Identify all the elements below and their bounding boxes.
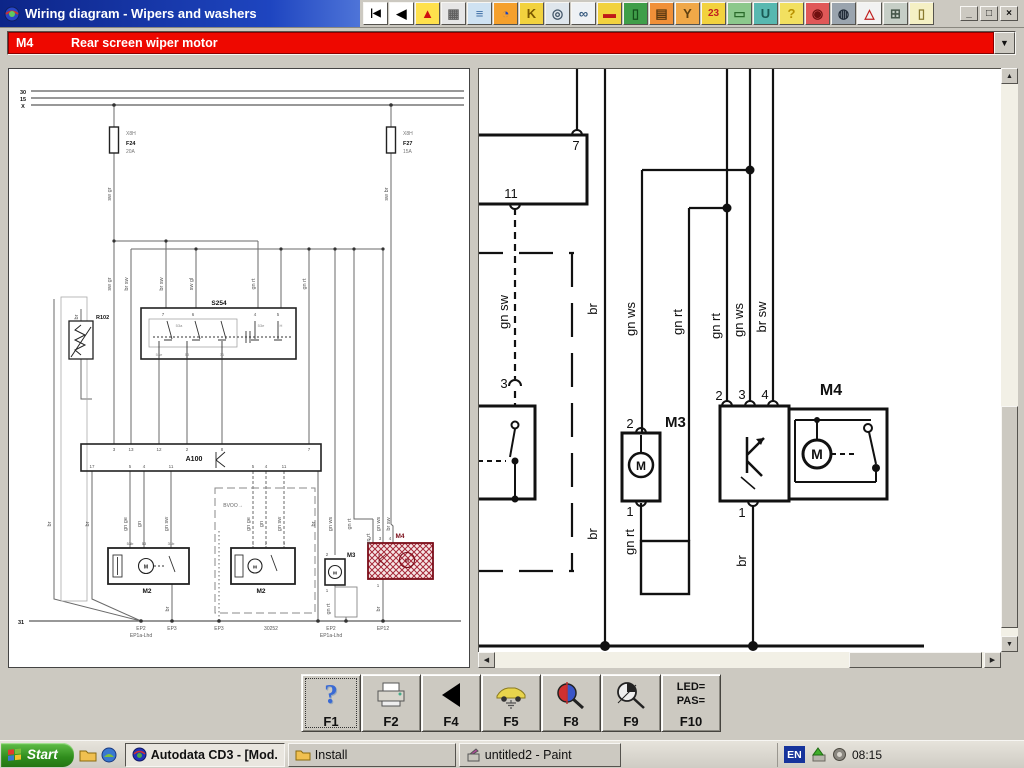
diagram-label: M bbox=[144, 565, 148, 571]
diagram-label: gn ws bbox=[623, 302, 638, 336]
diagram-label: F27 bbox=[403, 141, 412, 147]
titlebar: Wiring diagram - Wipers and washers |◀◀▲… bbox=[0, 0, 1024, 28]
led-label: LED= bbox=[677, 681, 705, 695]
diagram-label: 31 bbox=[220, 352, 225, 357]
timing-globe-icon[interactable]: ◔ bbox=[493, 2, 518, 25]
diagram-label: EP3 bbox=[214, 626, 224, 632]
diagram-label: gn ws bbox=[328, 517, 334, 532]
hoist-icon[interactable]: ≡ bbox=[467, 2, 492, 25]
diagram-label: 1 bbox=[626, 504, 633, 519]
diagram-label: 2 bbox=[265, 541, 268, 546]
scroll-right-button[interactable]: ▶ bbox=[984, 652, 1001, 668]
diagram-label: M bbox=[253, 565, 257, 570]
diagram-label: 13 bbox=[128, 447, 134, 452]
diagram-label: br bbox=[585, 303, 600, 315]
diagram-label: M bbox=[636, 459, 646, 473]
scroll-left-button[interactable]: ◀ bbox=[478, 652, 495, 668]
mirrors-icon-glyph: ∞ bbox=[579, 7, 588, 20]
diagram-label: EP12 bbox=[377, 626, 389, 632]
diagram-label: 5 bbox=[252, 464, 255, 469]
diagram-label: M4 bbox=[820, 382, 842, 399]
diagram-label: EP2 bbox=[326, 626, 336, 632]
warning-icon[interactable]: ▲ bbox=[415, 2, 440, 25]
diagram-label: H bbox=[280, 323, 283, 328]
diagram-label: 1 bbox=[377, 583, 380, 588]
truck-icon-glyph: ▤ bbox=[655, 7, 667, 20]
diagram-label: gn sw bbox=[496, 294, 511, 329]
first-page-button[interactable]: |◀ bbox=[363, 2, 388, 25]
pas-label: PAS= bbox=[677, 695, 705, 709]
diagram-label: 11 bbox=[504, 186, 518, 201]
diagram-label: 3 bbox=[500, 376, 507, 391]
diagram-label: X8H bbox=[403, 131, 413, 137]
system-tray: EN 08:15 bbox=[777, 743, 890, 767]
diagram-label: EP3 bbox=[167, 626, 177, 632]
window-title: Wiring diagram - Wipers and washers bbox=[25, 6, 257, 21]
diagram-label: M3 bbox=[665, 414, 686, 431]
diagram-label: 53 bbox=[185, 352, 190, 357]
airbag-icon-glyph: ◉ bbox=[812, 7, 823, 20]
abs-wheel-icon[interactable]: ◍ bbox=[831, 2, 856, 25]
paint-icon bbox=[466, 748, 481, 762]
diagram-label: 15 bbox=[20, 97, 26, 103]
door-switch-icon[interactable]: ▯ bbox=[909, 2, 934, 25]
diagram-label: EP1a-Lhd bbox=[130, 633, 152, 639]
diagram-label: 3 bbox=[283, 541, 286, 546]
diagram-label: gn rt bbox=[326, 603, 332, 614]
diagram-label: 6 bbox=[192, 312, 195, 317]
hoist-icon-glyph: ≡ bbox=[476, 7, 484, 20]
diagram-label: gn sw bbox=[164, 517, 170, 531]
function-key-label: F5 bbox=[503, 714, 518, 729]
diagram-label: 12 bbox=[156, 447, 162, 452]
horizontal-scroll-thumb[interactable] bbox=[849, 652, 982, 668]
first-page-button-glyph: |◀ bbox=[370, 9, 381, 19]
diagram-label: 2 bbox=[715, 388, 722, 403]
detail-diagram-panel[interactable]: 711gn sw3brbrgn wsgn rtgn rtgn wsbr sw2M… bbox=[478, 68, 1001, 652]
abs-warning-icon[interactable]: △ bbox=[857, 2, 882, 25]
led-pas-icon: LED=PAS= bbox=[662, 675, 720, 714]
diagram-label: X bbox=[21, 104, 25, 110]
overview-wiring-diagram: 3015XX8HF2420AX8HF2715Asw grsw brsw grbr… bbox=[9, 69, 469, 667]
quick-launch bbox=[77, 747, 125, 763]
window-panels-icon[interactable]: ▦ bbox=[441, 2, 466, 25]
folder-quicklaunch-icon[interactable] bbox=[79, 747, 97, 762]
diagram-label: M2 bbox=[142, 588, 151, 595]
diagram-label: 30252 bbox=[264, 626, 278, 632]
function-key-label: F1 bbox=[323, 714, 338, 729]
function-button-f2[interactable]: F2 bbox=[361, 674, 421, 732]
detail-wiring-diagram: 711gn sw3brbrgn wsgn rtgn rtgn wsbr sw2M… bbox=[479, 69, 1000, 651]
task-label: Install bbox=[315, 748, 348, 762]
diagram-label: 4 bbox=[143, 464, 146, 469]
mirrors-icon[interactable]: ∞ bbox=[571, 2, 596, 25]
diagram-label: gn ge bbox=[123, 517, 129, 531]
diagram-label: EP2 bbox=[594, 649, 617, 651]
detail-vertical-scrollbar[interactable]: ▲ ▼ bbox=[1001, 68, 1018, 652]
window-controls: _□× bbox=[934, 0, 1024, 27]
earth-point-search-icon bbox=[602, 675, 660, 714]
diagram-label: 53e bbox=[156, 352, 163, 357]
diagram-label: gn sw bbox=[277, 517, 283, 531]
close-button[interactable]: × bbox=[1000, 6, 1018, 21]
diagram-label: 1 bbox=[738, 505, 745, 520]
diagram-label: gn bbox=[137, 521, 143, 527]
diagram-label: gn ws bbox=[731, 303, 746, 337]
door-lift-icon[interactable]: ▯ bbox=[623, 2, 648, 25]
bodywork-icon[interactable]: ▬ bbox=[597, 2, 622, 25]
diagram-label: F24 bbox=[126, 141, 136, 147]
diagram-label: 3 bbox=[379, 536, 382, 541]
diagram-label: 11 bbox=[282, 464, 287, 469]
diagram-label: br sw bbox=[124, 277, 130, 290]
door-switch-icon-glyph: ▯ bbox=[918, 7, 925, 20]
desktop-quicklaunch-icon[interactable] bbox=[101, 747, 117, 763]
diagram-label: br sw bbox=[754, 301, 769, 333]
component-selector: M4 Rear screen wiper motor ▼ bbox=[7, 31, 1016, 55]
diagram-label: gn rt bbox=[670, 309, 685, 335]
diagram-label: A100 bbox=[186, 456, 203, 463]
diagram-label: 5 bbox=[277, 312, 280, 317]
help-car-icon[interactable]: ? bbox=[779, 2, 804, 25]
diagram-label: 15A bbox=[403, 149, 413, 155]
diagram-label: 7 bbox=[308, 447, 311, 452]
back-button-glyph: ◀ bbox=[397, 7, 407, 20]
diagram-label: 5 bbox=[129, 464, 132, 469]
diagram-label: br bbox=[311, 521, 317, 526]
diagram-label: sw gl bbox=[189, 278, 195, 291]
clock[interactable]: 08:15 bbox=[852, 748, 882, 762]
function-button-f1[interactable]: ?F1 bbox=[301, 674, 361, 732]
diagram-label: 3 bbox=[113, 447, 116, 452]
chevron-down-icon: ▼ bbox=[1000, 38, 1009, 48]
wheel-icon-glyph: ◎ bbox=[552, 7, 563, 20]
oil-can-icon-glyph: U bbox=[761, 7, 770, 20]
diagram-label: br bbox=[585, 528, 600, 540]
scroll-down-button[interactable]: ▼ bbox=[1001, 636, 1018, 652]
diagram-label: br bbox=[376, 606, 382, 611]
diagram-label: M3 bbox=[347, 553, 356, 559]
component-code: M4 bbox=[9, 36, 71, 50]
overview-diagram-panel[interactable]: 3015XX8HF2420AX8HF2715Asw grsw brsw grbr… bbox=[8, 68, 470, 668]
scrollbar-corner bbox=[1001, 652, 1018, 668]
door-lift-icon-glyph: ▯ bbox=[632, 7, 639, 20]
diagram-label: br bbox=[74, 314, 80, 319]
diagram-label: 53a bbox=[176, 323, 183, 328]
function-button-f8[interactable]: F8 bbox=[541, 674, 601, 732]
key-fob-icon[interactable]: Y bbox=[675, 2, 700, 25]
diagram-label: 11 bbox=[169, 464, 174, 469]
engine-icon[interactable]: ⊞ bbox=[883, 2, 908, 25]
diagram-label: br bbox=[165, 606, 171, 611]
key-programming-icon-glyph: K bbox=[527, 7, 536, 20]
diagram-label: gn rt bbox=[708, 313, 723, 339]
print-icon bbox=[362, 675, 420, 714]
diagram-label: M bbox=[333, 571, 337, 576]
diagram-label: 17 bbox=[89, 464, 95, 469]
diagram-label: sw br bbox=[384, 187, 390, 200]
function-key-bar: ?F1F2F4F5F8F9LED=PAS=F10 bbox=[0, 672, 1024, 738]
diagram-label: 3 bbox=[738, 387, 745, 402]
help-icon: ? bbox=[302, 675, 360, 714]
function-button-f5[interactable]: F5 bbox=[481, 674, 541, 732]
task-button-area: Autodata CD3 - [Mod...Installuntitled2 -… bbox=[125, 743, 624, 767]
oil-can-icon[interactable]: U bbox=[753, 2, 778, 25]
diagram-label: 7 bbox=[162, 312, 165, 317]
back-button[interactable]: ◀ bbox=[389, 2, 414, 25]
diagram-label: 4 bbox=[761, 387, 768, 402]
diagram-label: 8 bbox=[221, 447, 224, 452]
diagram-label: 4 bbox=[265, 464, 268, 469]
minimize-button[interactable]: _ bbox=[960, 6, 978, 21]
diagram-label: S254 bbox=[211, 300, 227, 307]
function-key-label: F2 bbox=[383, 714, 398, 729]
function-button-f4[interactable]: F4 bbox=[421, 674, 481, 732]
diagram-label: M bbox=[811, 446, 823, 462]
diagram-label: gn ws bbox=[376, 517, 382, 532]
diagram-label: 53b bbox=[127, 541, 134, 546]
function-button-f9[interactable]: F9 bbox=[601, 674, 661, 732]
diagram-label: M bbox=[405, 559, 409, 565]
diagram-label: 7 bbox=[572, 138, 579, 153]
app-icon bbox=[4, 6, 20, 22]
diagram-label: 31 bbox=[18, 620, 24, 626]
truck-icon[interactable]: ▤ bbox=[649, 2, 674, 25]
task-label: Autodata CD3 - [Mod... bbox=[151, 748, 278, 762]
diagram-label: sw gr bbox=[107, 277, 113, 290]
diagram-label: br bbox=[47, 521, 53, 526]
task-label: untitled2 - Paint bbox=[485, 748, 572, 762]
printer-icon-glyph: ▭ bbox=[733, 7, 745, 20]
component-search-icon bbox=[542, 675, 600, 714]
window-panels-icon-glyph: ▦ bbox=[447, 7, 459, 20]
diagram-label: gn rt bbox=[251, 278, 257, 289]
detail-diagram-wrap: 711gn sw3brbrgn wsgn rtgn rtgn wsbr sw2M… bbox=[478, 68, 1018, 668]
diagram-label: EP1a-Lhd bbox=[320, 633, 342, 639]
diagram-label: gn rt bbox=[302, 278, 308, 289]
component-dropdown-button[interactable]: ▼ bbox=[994, 32, 1015, 54]
diagram-label: M4 bbox=[395, 533, 404, 540]
scroll-up-button[interactable]: ▲ bbox=[1001, 68, 1018, 84]
screen: { "window": { "title": "Wiring diagram -… bbox=[0, 0, 1024, 768]
function-key-label: F9 bbox=[623, 714, 638, 729]
diagram-label: br bbox=[85, 521, 91, 526]
diagram-label: 20A bbox=[126, 149, 136, 155]
service-intervals-icon[interactable]: 23 bbox=[701, 2, 726, 25]
diagram-label: gn bbox=[259, 521, 265, 527]
key-fob-icon-glyph: Y bbox=[683, 7, 692, 20]
taskbar: Start Autodata CD3 - [Mod...Installuntit… bbox=[0, 740, 1024, 768]
autodata-icon bbox=[132, 747, 147, 762]
diagram-label: br bbox=[734, 555, 749, 567]
airbag-icon[interactable]: ◉ bbox=[805, 2, 830, 25]
diagram-label: M2 bbox=[256, 588, 265, 595]
diagram-label: 30 bbox=[20, 90, 26, 96]
abs-wheel-icon-glyph: ◍ bbox=[838, 7, 849, 20]
wheel-icon[interactable]: ◎ bbox=[545, 2, 570, 25]
diagram-label: gn ge bbox=[246, 517, 252, 531]
timing-globe-icon-glyph: ◔ bbox=[502, 7, 510, 20]
diagram-label: 4 bbox=[254, 312, 257, 317]
maximize-button[interactable]: □ bbox=[980, 6, 998, 21]
function-key-label: F8 bbox=[563, 714, 578, 729]
detail-horizontal-scrollbar[interactable]: ◀ ▶ bbox=[478, 652, 1001, 668]
diagram-label: R102 bbox=[96, 315, 109, 321]
diagram-label: BVOO→ bbox=[223, 503, 242, 509]
diagram-label: br sw bbox=[386, 517, 392, 530]
component-label: Rear screen wiper motor bbox=[71, 36, 218, 50]
diagram-label: 53 bbox=[142, 541, 147, 546]
diagram-label: 1 bbox=[252, 541, 255, 546]
eject-hardware-icon[interactable] bbox=[810, 747, 827, 762]
windows-flag-icon bbox=[7, 747, 23, 762]
warning-icon-glyph: ▲ bbox=[421, 7, 434, 20]
diagram-label: sw gr bbox=[107, 187, 113, 200]
component-selector-value[interactable]: M4 Rear screen wiper motor bbox=[8, 32, 994, 54]
vehicle-earth-icon bbox=[482, 675, 540, 714]
vertical-scroll-thumb[interactable] bbox=[1001, 406, 1018, 628]
function-button-f10[interactable]: LED=PAS=F10 bbox=[661, 674, 721, 732]
abs-warning-icon-glyph: △ bbox=[865, 7, 875, 20]
diagram-label: gn rt bbox=[347, 518, 353, 529]
printer-icon[interactable]: ▭ bbox=[727, 2, 752, 25]
service-intervals-icon-glyph: 23 bbox=[708, 9, 719, 19]
diagram-label: br sw bbox=[159, 277, 165, 290]
taskbar-task-untitled2-paint[interactable]: untitled2 - Paint bbox=[459, 743, 621, 767]
language-indicator[interactable]: EN bbox=[784, 746, 805, 763]
diagram-label: 1 bbox=[326, 588, 329, 593]
diagram-label: EP12 bbox=[738, 649, 768, 651]
bodywork-icon-glyph: ▬ bbox=[603, 7, 616, 20]
back-icon bbox=[422, 675, 480, 714]
start-button[interactable]: Start bbox=[1, 743, 74, 767]
key-programming-icon[interactable]: K bbox=[519, 2, 544, 25]
diagram-label: 2 bbox=[186, 447, 189, 452]
titlebar-left: Wiring diagram - Wipers and washers bbox=[0, 0, 360, 27]
folder-icon bbox=[295, 748, 311, 761]
diagram-label: 4 bbox=[389, 536, 392, 541]
function-key-label: F4 bbox=[443, 714, 458, 729]
diagram-label: 31b bbox=[168, 541, 175, 546]
function-key-label: F10 bbox=[680, 714, 702, 729]
engine-icon-glyph: ⊞ bbox=[890, 7, 901, 20]
top-toolbar: |◀◀▲▦≡◔K◎∞▬▯▤Y23▭U?◉◍△⊞▯ bbox=[360, 0, 934, 27]
start-label: Start bbox=[27, 747, 58, 762]
diagram-label: X8H bbox=[126, 131, 136, 137]
diagram-label: 2 bbox=[326, 552, 329, 557]
diagram-label: gn rt bbox=[622, 529, 637, 555]
diagram-label: 2 bbox=[626, 416, 633, 431]
help-car-icon-glyph: ? bbox=[788, 7, 796, 20]
volume-icon[interactable] bbox=[832, 747, 847, 762]
diagram-label: EP2 bbox=[136, 626, 146, 632]
diagram-label: 53e bbox=[258, 323, 265, 328]
taskbar-task-install[interactable]: Install bbox=[288, 743, 456, 767]
taskbar-task-autodata-cd3-mod-[interactable]: Autodata CD3 - [Mod... bbox=[125, 743, 285, 767]
